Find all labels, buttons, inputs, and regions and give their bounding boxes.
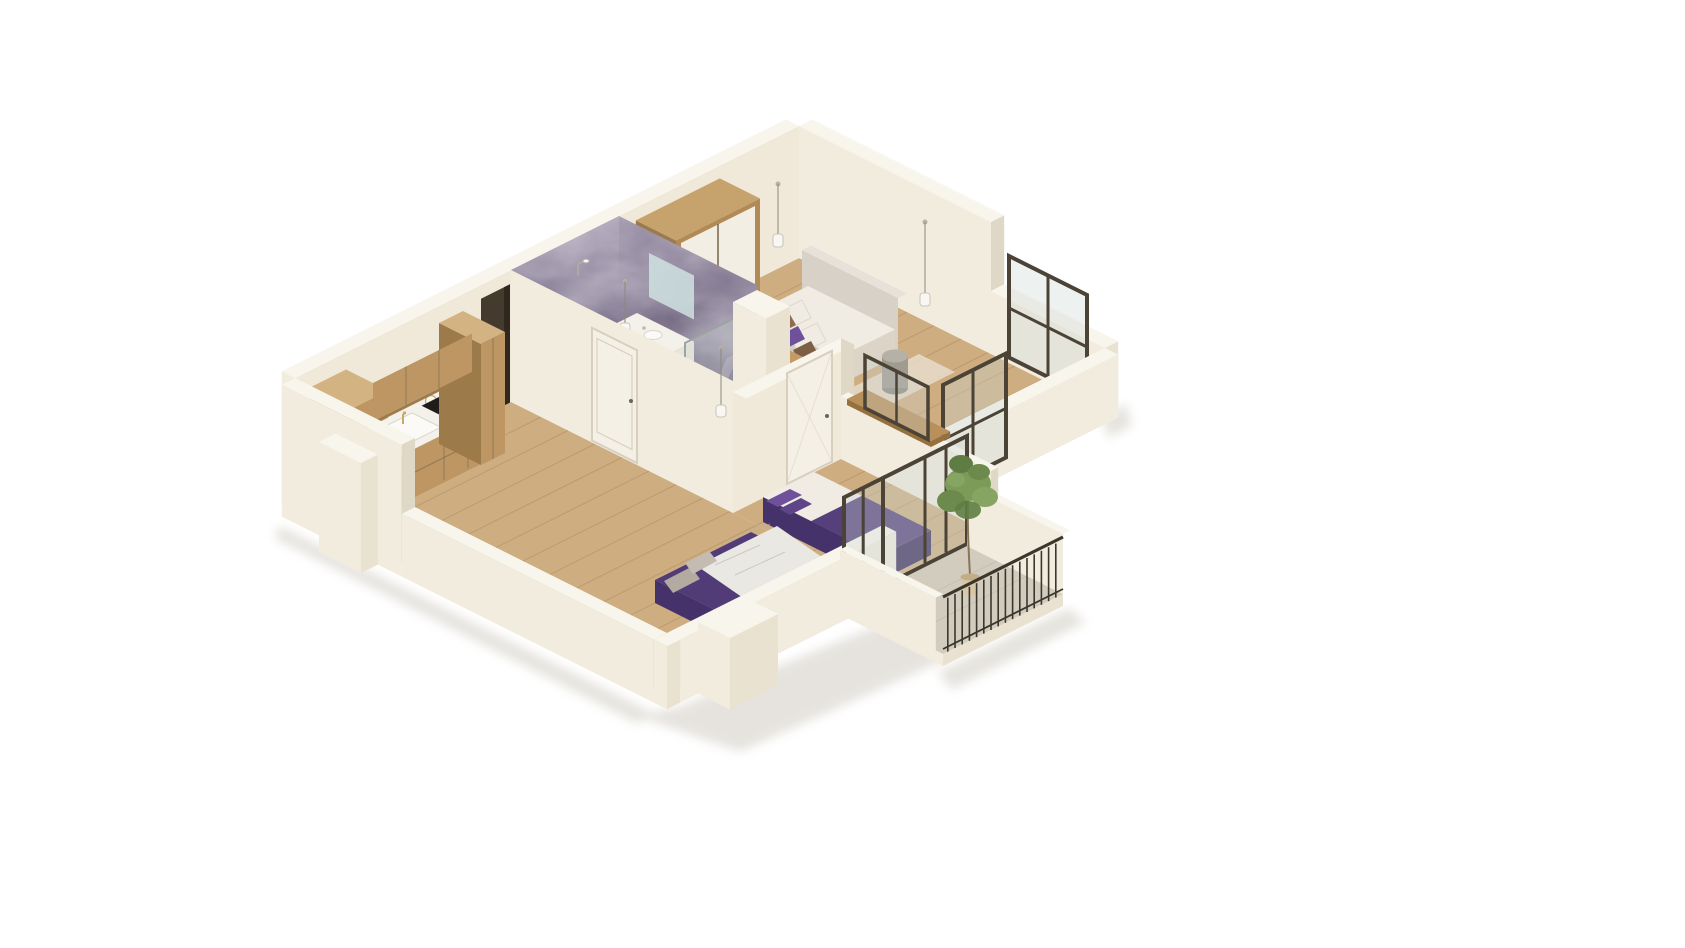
- bathroom-door-panel[interactable]: [592, 328, 637, 463]
- scene-root: [274, 119, 1132, 752]
- interior-door[interactable]: [787, 351, 832, 484]
- exterior-pilaster: [319, 434, 378, 573]
- corner-face-left: [654, 640, 667, 710]
- apartment-render: 3D isometric cutaway floor plan render o…: [0, 0, 1685, 948]
- plant-foliage: [968, 464, 990, 480]
- vanity-faucet: [642, 326, 646, 330]
- right-wall-step-cap: [991, 215, 1004, 291]
- pendant-shade: [773, 234, 783, 247]
- bathroom-door[interactable]: [592, 328, 637, 463]
- shower-head-disc: [583, 259, 589, 263]
- pilaster-face-left: [319, 442, 361, 573]
- left-wall-step-cap: [402, 438, 415, 514]
- plant-foliage: [955, 501, 981, 519]
- plant-foliage: [947, 473, 965, 487]
- pendant-shade: [920, 293, 930, 306]
- kitchen-faucet-spout: [403, 411, 406, 414]
- interior-door-handle[interactable]: [825, 414, 829, 418]
- pilaster-face-front: [361, 455, 378, 573]
- pendant-shade: [716, 405, 726, 417]
- corner-face-front: [667, 640, 680, 710]
- stool-top: [882, 350, 908, 363]
- canvas: 3D isometric cutaway floor plan render o…: [0, 0, 1685, 948]
- bathroom-door-handle[interactable]: [629, 399, 633, 403]
